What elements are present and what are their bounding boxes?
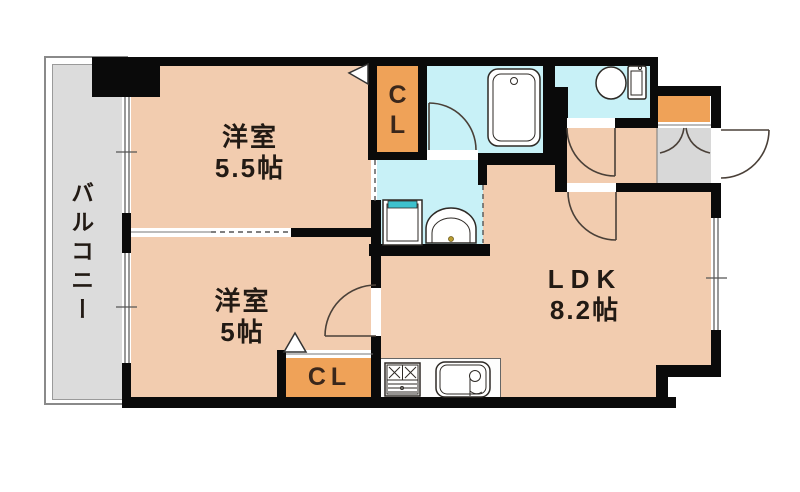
sink-icon [436, 362, 490, 397]
bathroom-door-arc [429, 103, 476, 150]
closet-lower-label: CL [286, 363, 373, 392]
washbasin-icon [426, 208, 476, 243]
toilet-door-arc [567, 128, 615, 176]
bedroom-upper-label: 洋室 5.5帖 [150, 122, 350, 184]
ldk-label: LDK 8.2帖 [490, 264, 680, 326]
closet-upper-label: C L [377, 80, 418, 140]
floor-plan: バルコニー 洋室 5.5帖 洋室 5帖 LDK 8.2帖 C L CL [0, 0, 800, 492]
entry-door-arc [721, 130, 769, 178]
closet-upper-letter-c: C [377, 80, 418, 110]
bedroom-lower-label: 洋室 5帖 [145, 286, 340, 348]
bathtub-icon [488, 69, 540, 146]
closet-upper-letter-l: L [377, 110, 418, 140]
ldk-door-arc [568, 192, 616, 240]
ldk-size: 8.2帖 [490, 295, 680, 326]
linework-layer [0, 0, 800, 492]
bedroom-upper-size: 5.5帖 [150, 153, 350, 184]
bedroom-upper-name: 洋室 [150, 122, 350, 153]
balcony-label: バルコニー [66, 163, 94, 343]
shoe-cabinet-door-arcs [660, 128, 710, 153]
toilet-icon [596, 66, 646, 99]
ldk-name: LDK [490, 264, 680, 295]
washing-machine-icon [383, 200, 422, 245]
stove-icon [385, 363, 420, 396]
bedroom-lower-name: 洋室 [145, 286, 340, 317]
bedroom-lower-size: 5帖 [145, 317, 340, 348]
door-direction-arrow-upper [349, 64, 368, 84]
